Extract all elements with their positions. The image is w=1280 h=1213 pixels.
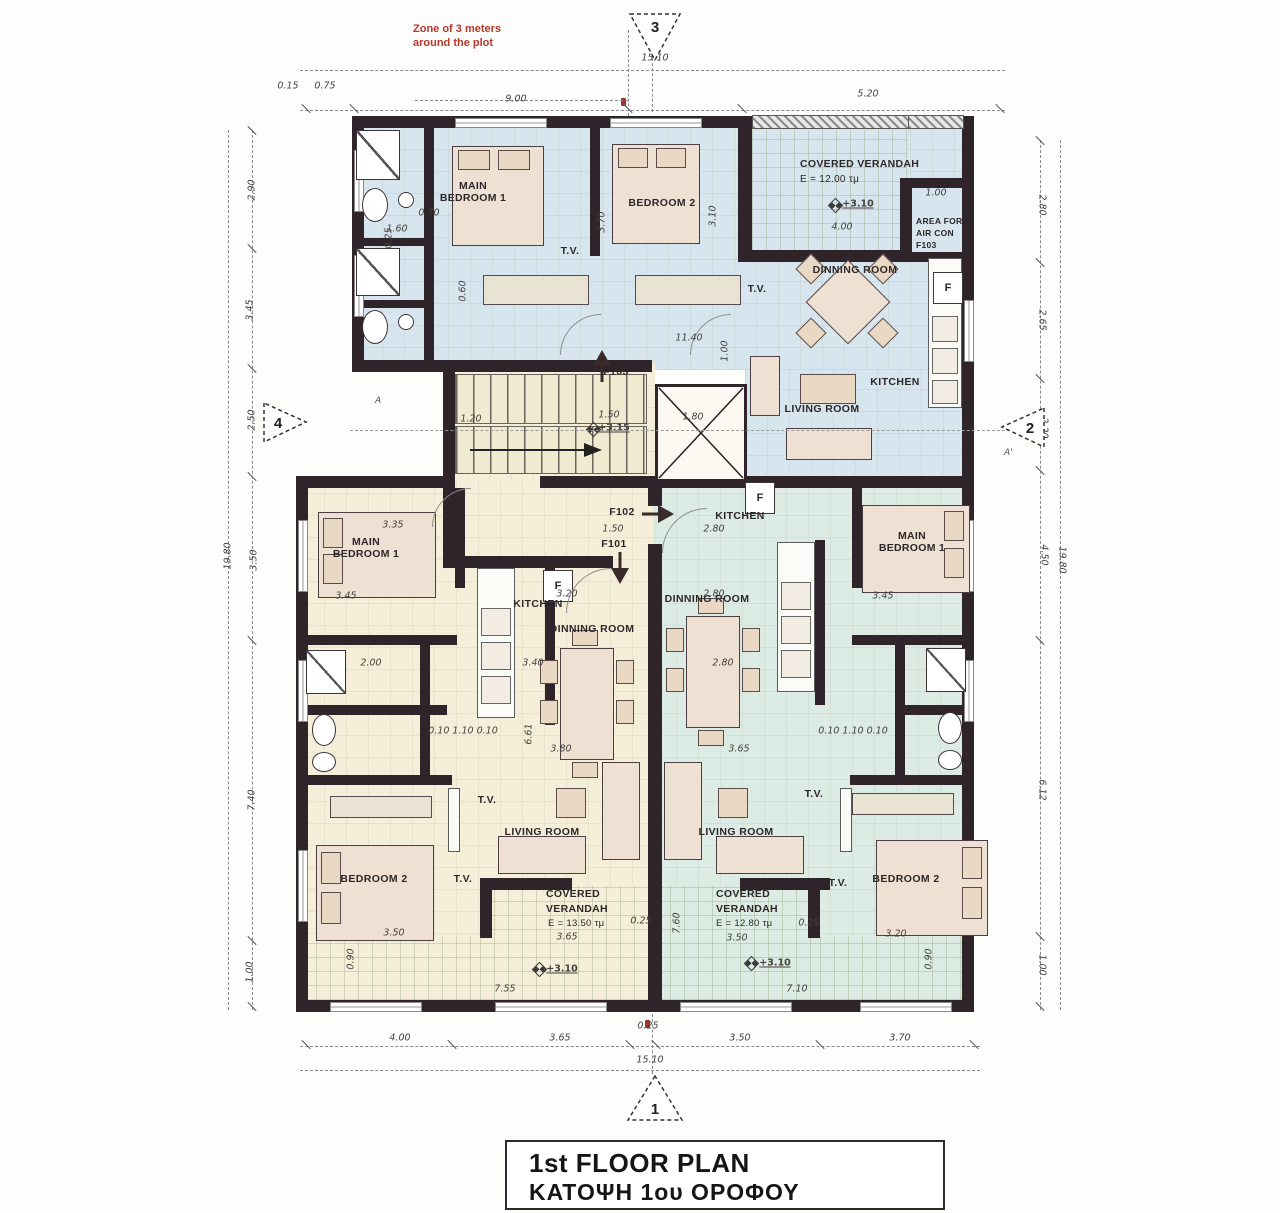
room-label-line: MAIN bbox=[322, 536, 410, 548]
section-marker-3: 3 bbox=[620, 10, 690, 65]
room-label-top-bedroom2: BEDROOM 2 bbox=[628, 197, 695, 209]
dim-text: 3.65 bbox=[728, 744, 749, 755]
tv-label: T.V. bbox=[829, 877, 848, 889]
room-label-line: MAIN bbox=[868, 530, 956, 542]
room-label-right-verandah-1: COVERED bbox=[716, 888, 770, 900]
dim-text: 3.20 bbox=[885, 929, 906, 940]
dim-text: 7.10 bbox=[786, 984, 807, 995]
room-label-left-verandah-2: VERANDAH bbox=[546, 903, 608, 915]
dim-text: 2.65 bbox=[1037, 309, 1048, 330]
dim-text: 2.80 bbox=[703, 589, 724, 600]
flat-label-f101: F101 bbox=[601, 538, 627, 550]
section-marker-2-number: 2 bbox=[1026, 420, 1034, 437]
room-label-right-bedroom2: BEDROOM 2 bbox=[872, 873, 939, 885]
axis-line-top bbox=[652, 58, 653, 112]
dim-text: 1.50 bbox=[602, 524, 623, 535]
dim-text: 3.50 bbox=[383, 928, 404, 939]
level-text: +3.10 bbox=[842, 199, 873, 210]
dim-text: 1.20 bbox=[460, 414, 481, 425]
tv-label: T.V. bbox=[454, 873, 473, 885]
dim-text: 3.65 bbox=[549, 1033, 570, 1044]
floor-plan-sheet: F F F bbox=[0, 0, 1280, 1213]
verandah-area-text: E = 12.00 τμ bbox=[800, 174, 859, 185]
verandah-area-text: E = 13.50 τμ bbox=[548, 918, 604, 929]
dim-text: 0.15 bbox=[277, 81, 298, 92]
dim-line-right bbox=[1040, 140, 1041, 1010]
dim-text: 3.40 bbox=[522, 658, 543, 669]
dim-text: 3.10 bbox=[708, 205, 719, 226]
dim-text: 0.25 bbox=[384, 227, 395, 248]
dim-text: 4.00 bbox=[831, 222, 852, 233]
dim-text: 0.25 bbox=[637, 1021, 658, 1032]
room-label-line: BEDROOM 1 bbox=[322, 548, 410, 560]
tv-label: T.V. bbox=[478, 794, 497, 806]
zone-note-line2: around the plot bbox=[413, 36, 501, 50]
dim-text: 1.00 bbox=[1037, 954, 1048, 975]
dim-text: 11.40 bbox=[675, 333, 702, 344]
room-label-top-living: LIVING ROOM bbox=[785, 403, 860, 415]
room-label-left-dinning: DINNING ROOM bbox=[550, 623, 635, 635]
dim-line-left-total bbox=[228, 130, 229, 1010]
section-marker-2: 2 bbox=[995, 403, 1050, 453]
dim-text: 3.80 bbox=[550, 744, 571, 755]
dim-text: 7.60 bbox=[672, 912, 683, 933]
level-text: +3.15 bbox=[598, 423, 629, 434]
level-text: +3.10 bbox=[546, 964, 577, 975]
dim-text: 3.45 bbox=[245, 299, 256, 320]
dim-text: 7.55 bbox=[494, 984, 515, 995]
dim-text: 7.40 bbox=[247, 789, 258, 810]
room-label-left-main-bedroom: MAIN BEDROOM 1 bbox=[322, 536, 410, 560]
dim-text: 2.80 bbox=[703, 524, 724, 535]
dim-text: 6.12 bbox=[1037, 779, 1048, 800]
dim-text: 2.80 bbox=[712, 658, 733, 669]
section-line-a bbox=[350, 430, 1030, 431]
dim-text: 0.10 1.10 0.10 bbox=[428, 726, 498, 737]
dim-text: 9.00 bbox=[505, 94, 526, 105]
dim-line-bottom bbox=[300, 1046, 980, 1047]
dim-text: 3.65 bbox=[556, 932, 577, 943]
room-label-top-dinning: DINNING ROOM bbox=[813, 264, 898, 276]
room-label-line: BEDROOM 1 bbox=[868, 542, 956, 554]
dim-text: 1.80 bbox=[682, 412, 703, 423]
room-label-left-verandah-1: COVERED bbox=[546, 888, 600, 900]
section-marker-4: 4 bbox=[258, 398, 313, 448]
aircon-label-2: AIR CON bbox=[916, 228, 954, 238]
section-letter-a: A bbox=[375, 396, 381, 406]
dim-text: 0.60 bbox=[458, 280, 469, 301]
dim-text: 3.35 bbox=[382, 520, 403, 531]
aircon-label-1: AREA FOR bbox=[916, 216, 962, 226]
zone-note-line1: Zone of 3 meters bbox=[413, 22, 501, 36]
dim-text: 0.90 bbox=[346, 948, 357, 969]
dim-text: 1.50 bbox=[598, 410, 619, 421]
dim-line-right-total bbox=[1060, 140, 1061, 1010]
dim-text: 19.80 bbox=[223, 542, 234, 569]
room-label-top-kitchen: KITCHEN bbox=[870, 376, 919, 388]
room-label-right-living: LIVING ROOM bbox=[699, 826, 774, 838]
room-label-left-living: LIVING ROOM bbox=[505, 826, 580, 838]
dim-text: 4.50 bbox=[1039, 544, 1050, 565]
zone-note: Zone of 3 meters around the plot bbox=[413, 22, 501, 50]
dim-text: 3.50 bbox=[726, 933, 747, 944]
dim-text: 4.00 bbox=[389, 1033, 410, 1044]
dim-text: 0.25 bbox=[630, 916, 651, 927]
dim-text: 15.10 bbox=[636, 1055, 663, 1066]
room-label-left-kitchen: KITCHEN bbox=[513, 598, 562, 610]
level-text: +3.10 bbox=[759, 958, 790, 969]
dim-text: 0.70 bbox=[418, 208, 439, 219]
section-marker-1: 1 bbox=[620, 1072, 690, 1124]
dim-text: 3.45 bbox=[872, 591, 893, 602]
tv-label: T.V. bbox=[748, 283, 767, 295]
room-label-right-verandah-2: VERANDAH bbox=[716, 903, 778, 915]
dim-text: 19.80 bbox=[1057, 546, 1068, 573]
room-label-top-verandah: COVERED VERANDAH bbox=[800, 158, 919, 170]
title-block: 1st FLOOR PLAN ΚΑΤΟΨΗ 1ου ΟΡΟΦΟΥ bbox=[505, 1140, 945, 1210]
section-marker-1-number: 1 bbox=[651, 1101, 659, 1118]
dim-text: 2.90 bbox=[247, 179, 258, 200]
verandah-area-text: E = 12.80 τμ bbox=[716, 918, 772, 929]
aircon-label-3: F103 bbox=[916, 240, 937, 250]
title-greek: ΚΑΤΟΨΗ 1ου ΟΡΟΦΟΥ bbox=[529, 1179, 943, 1206]
title-english: 1st FLOOR PLAN bbox=[529, 1148, 943, 1179]
dim-text: 3.50 bbox=[249, 549, 260, 570]
dim-text: 3.20 bbox=[556, 589, 577, 600]
dim-text: 3.70 bbox=[889, 1033, 910, 1044]
flat-label-f102: F102 bbox=[609, 506, 635, 518]
tv-label: T.V. bbox=[805, 788, 824, 800]
section-marker-4-number: 4 bbox=[274, 415, 283, 432]
section-marker-3-number: 3 bbox=[651, 19, 659, 36]
dim-text: 2.80 bbox=[1037, 194, 1048, 215]
dim-text: 3.45 bbox=[335, 591, 356, 602]
room-label-top-main-bedroom: MAIN BEDROOM 1 bbox=[418, 180, 528, 204]
room-label-left-bedroom2: BEDROOM 2 bbox=[340, 873, 407, 885]
room-label-right-main-bedroom: MAIN BEDROOM 1 bbox=[868, 530, 956, 554]
dim-text: 2.00 bbox=[360, 658, 381, 669]
dim-text: 3.70 bbox=[597, 211, 608, 232]
dim-text: 0.75 bbox=[314, 81, 335, 92]
room-label-right-kitchen: KITCHEN bbox=[715, 510, 764, 522]
dim-text: 2.50 bbox=[247, 409, 258, 430]
dim-text: 0.90 bbox=[924, 948, 935, 969]
dim-text: 1.00 bbox=[245, 961, 256, 982]
dim-line-bottom-total bbox=[300, 1070, 980, 1071]
dim-text: 1.00 bbox=[925, 188, 946, 199]
dim-text: 6.61 bbox=[524, 723, 535, 744]
dim-text: 0.10 1.10 0.10 bbox=[818, 726, 888, 737]
dim-text: 3.50 bbox=[729, 1033, 750, 1044]
dim-text: 1.00 bbox=[720, 340, 731, 361]
tv-label: T.V. bbox=[561, 245, 580, 257]
room-label-line: BEDROOM 1 bbox=[418, 192, 528, 204]
room-label-line: MAIN bbox=[418, 180, 528, 192]
dim-text: 5.20 bbox=[857, 89, 878, 100]
flat-label-f103: F103 bbox=[603, 366, 629, 378]
dim-text: 0.25 bbox=[798, 918, 819, 929]
